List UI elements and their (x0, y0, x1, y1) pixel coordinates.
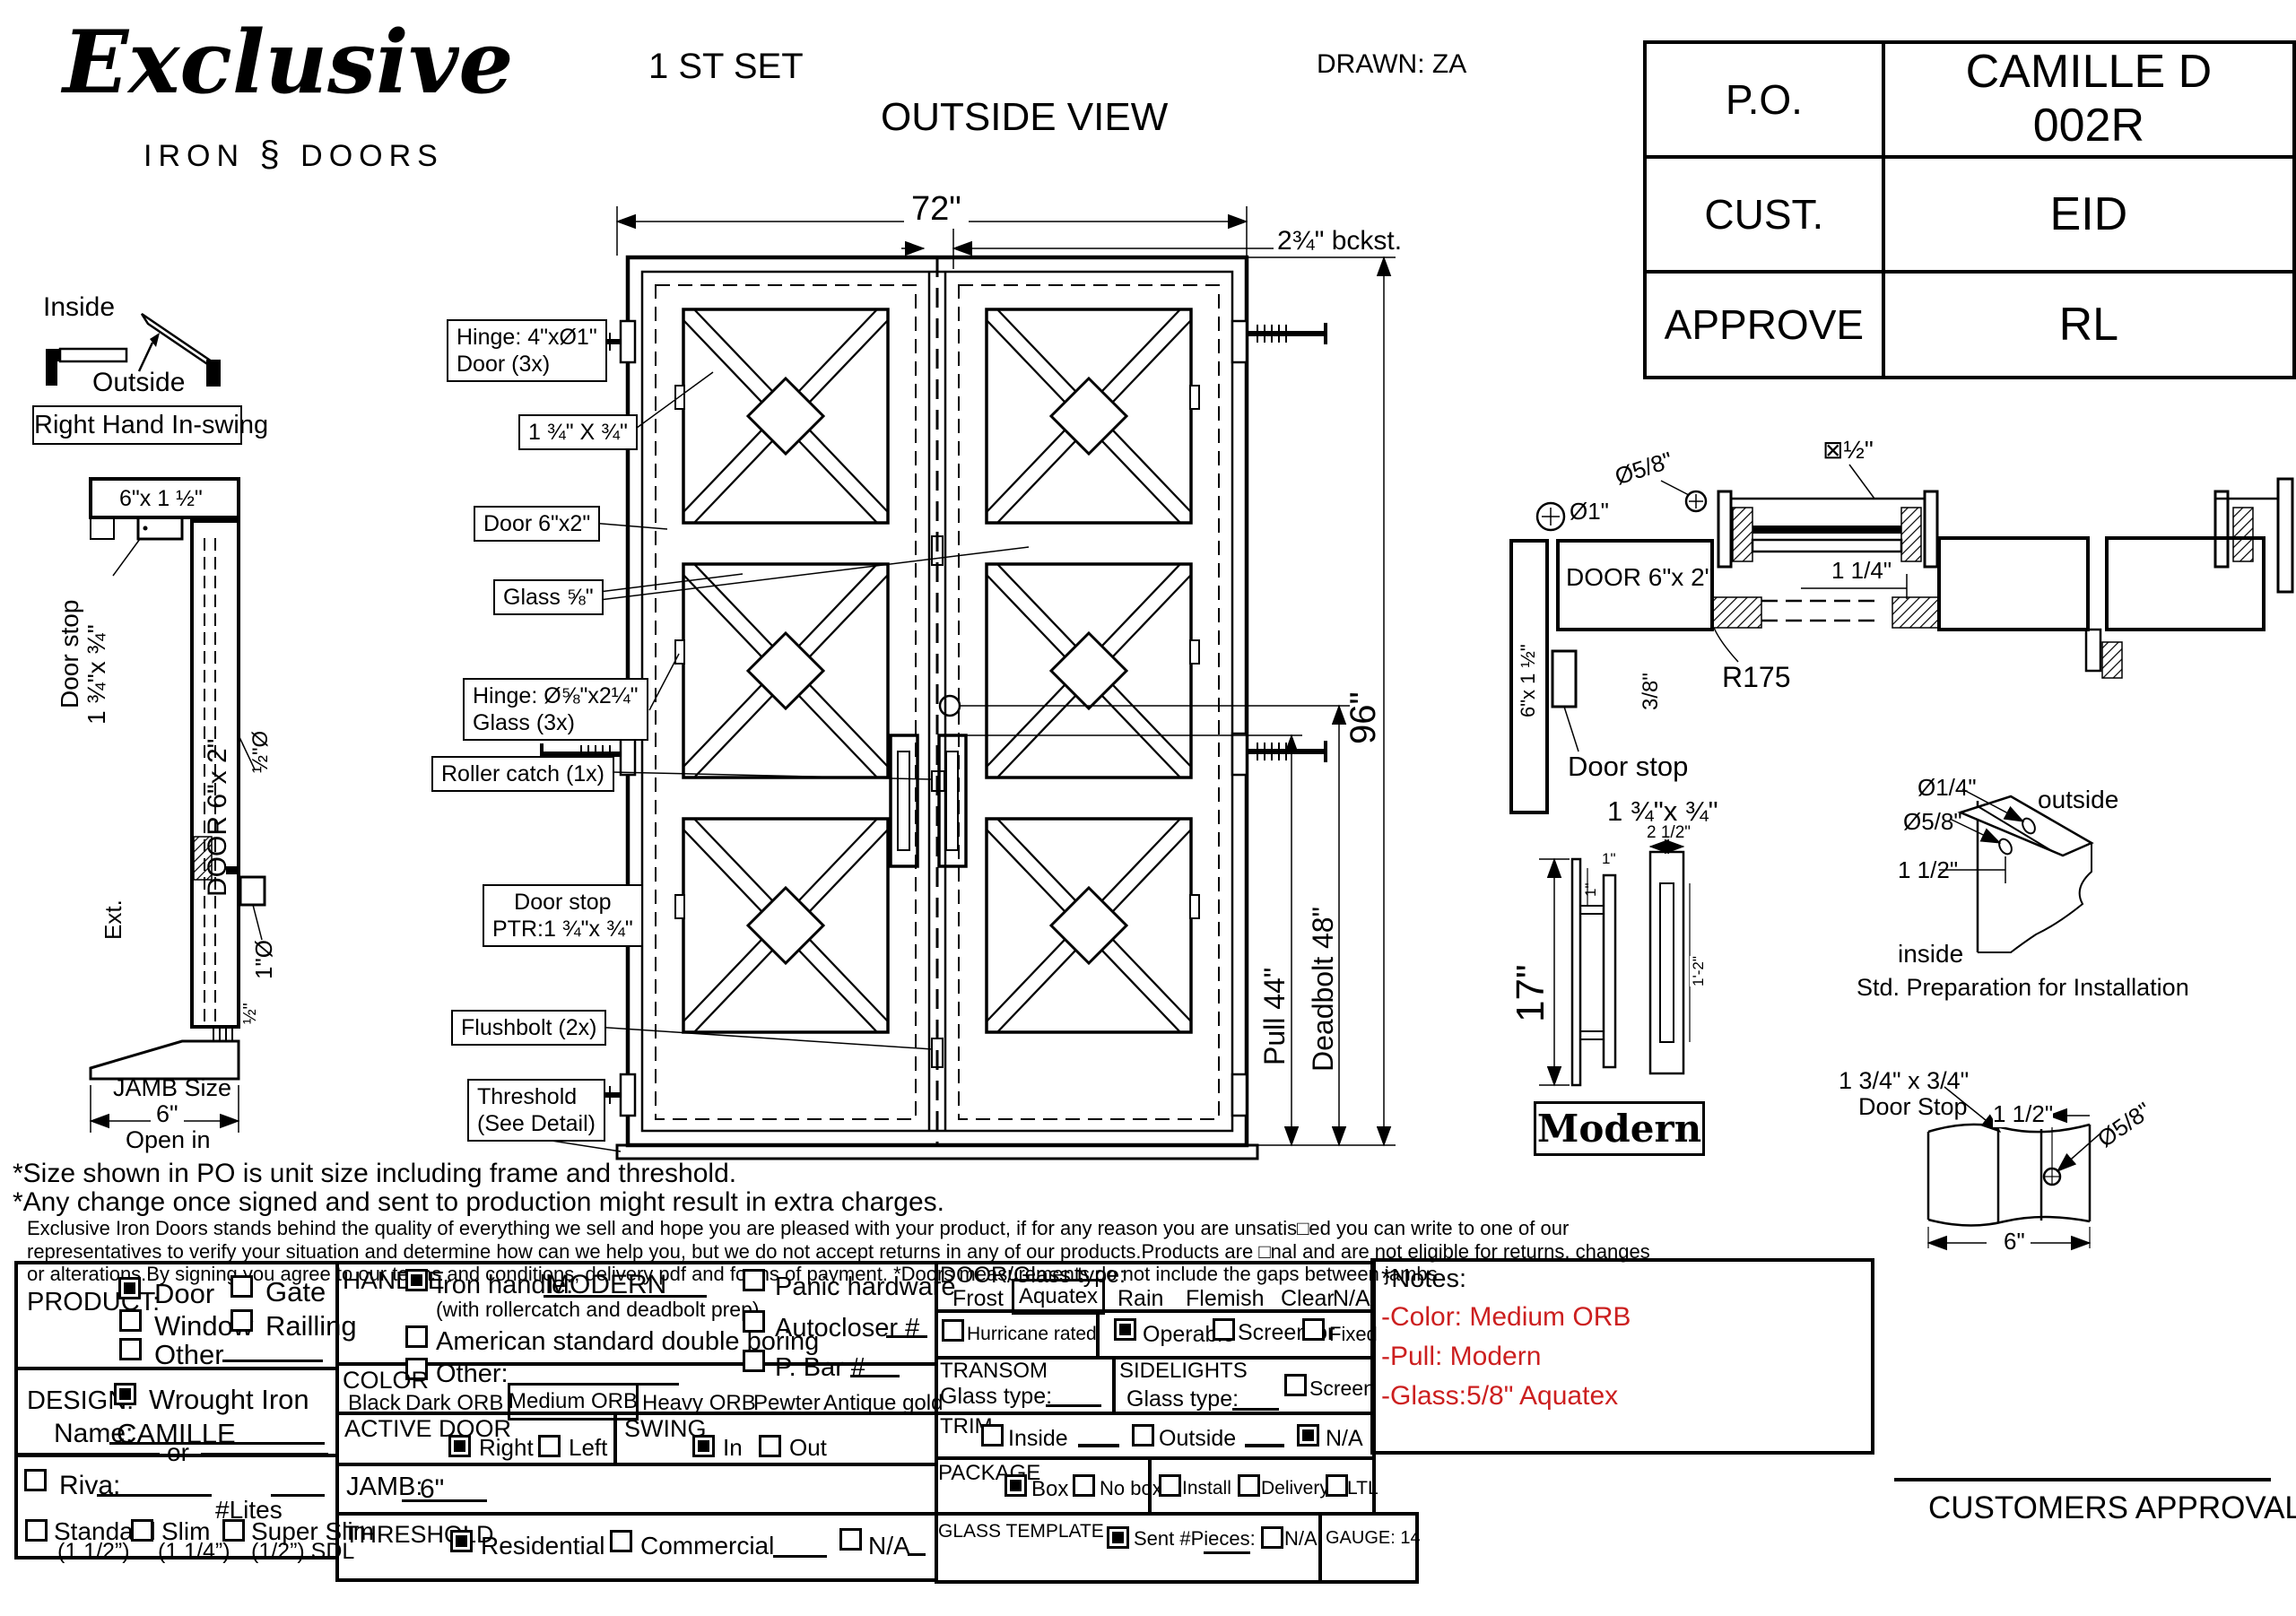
callout-roller: Roller catch (1x) (431, 756, 614, 792)
po-table: P.O. CAMILLE D 002R CUST. EID APPROVE RL (1643, 40, 2296, 379)
head-dim-38: 3/8" (1639, 673, 1664, 710)
color-medium-orb-label: Medium ORB (509, 1389, 638, 1414)
callout-hinge-glass-line2: Glass (3x) (473, 709, 639, 736)
product-railling-checkbox[interactable] (230, 1309, 253, 1332)
logo-doors: DOORS (300, 139, 444, 173)
glass-frost[interactable]: Frost (952, 1286, 1004, 1311)
handle-detail-drawing (1539, 847, 1690, 1085)
glass-na[interactable]: N/A (1333, 1286, 1370, 1311)
handle-one-b: 1" (1602, 850, 1616, 867)
autocloser-checkbox[interactable] (743, 1310, 765, 1333)
note-star2: *Any change once signed and sent to prod… (13, 1187, 944, 1218)
install-inside: inside (1898, 940, 1963, 968)
head-door-label: DOOR 6"x 2" (1566, 563, 1714, 591)
transom-glass-blank[interactable] (1046, 1404, 1101, 1407)
sidelights-screen-checkbox[interactable] (1284, 1374, 1307, 1396)
cust-label: CUST. (1645, 157, 1883, 272)
handle-height-dim: 17" (1509, 964, 1552, 1022)
active-left-label: Left (569, 1435, 607, 1461)
color-label: COLOR (343, 1367, 429, 1394)
callout-door-6x2: Door 6"x2" (474, 506, 600, 542)
cust-value: EID (1883, 157, 2294, 272)
note-star1: *Size shown in PO is unit size including… (13, 1159, 736, 1189)
operable-checkbox[interactable] (1114, 1318, 1136, 1341)
trim-inside-blank[interactable] (1078, 1444, 1119, 1447)
doorstop-name: Door Stop (1858, 1093, 1968, 1120)
color-medium-orb-selected[interactable]: Medium ORB (508, 1383, 639, 1421)
trim-outside-checkbox[interactable] (1132, 1424, 1154, 1447)
product-gate-checkbox[interactable] (230, 1275, 253, 1298)
install-outside: outside (2038, 786, 2118, 813)
callout-flushbolt: Flushbolt (2x) (451, 1010, 606, 1046)
callout-bar-dim: 1 ¾" X ¾" (518, 414, 638, 450)
color-antique-gold[interactable]: Antique gold (823, 1392, 943, 1416)
trim-na-checkbox[interactable] (1297, 1424, 1319, 1447)
package-ltl-label: LTL (1347, 1478, 1378, 1499)
handle-one-a: 1" (1582, 883, 1599, 898)
approve-value: RL (1883, 272, 2294, 378)
po-label: P.O. (1645, 42, 1883, 157)
callout-hinge-door-line1: Hinge: 4"xØ1" (457, 324, 597, 351)
jamb-one-dia: 1"Ø (251, 940, 277, 979)
autocloser-blank[interactable] (886, 1335, 927, 1338)
fixed-checkbox[interactable] (1302, 1318, 1325, 1341)
head-doorstop-label: Door stop (1568, 752, 1688, 783)
head-dim-114: 1 1/4" (1831, 558, 1892, 584)
threshold-residential-label: Residential (481, 1532, 605, 1560)
hurricane-checkbox[interactable] (942, 1319, 964, 1342)
swing-inside-label: Inside (43, 292, 115, 323)
transom-label: TRANSOM (940, 1360, 1048, 1384)
glass-rain[interactable]: Rain (1118, 1286, 1163, 1311)
swing-in-checkbox[interactable] (692, 1435, 715, 1457)
active-left-checkbox[interactable] (538, 1435, 561, 1457)
swing-type-label: Right Hand In-swing (32, 405, 242, 445)
head-dia-one: Ø1" (1570, 499, 1609, 525)
trim-outside-blank[interactable] (1245, 1444, 1284, 1447)
pbar-checkbox[interactable] (743, 1350, 765, 1372)
screen-checkbox[interactable] (1213, 1318, 1235, 1341)
handle-top-width: 2 1/2" (1647, 823, 1691, 842)
jamb-size-label: JAMB Size (113, 1074, 231, 1101)
callout-threshold: Threshold (See Detail) (467, 1079, 605, 1142)
glass-aquatex-label: Aquatex (1019, 1284, 1098, 1309)
approval-signature-line[interactable] (1894, 1478, 2271, 1481)
callout-glass: Glass ⅝" (493, 579, 604, 615)
standard-sub: (1 1/2”) (57, 1539, 130, 1564)
install-caption: Std. Preparation for Installation (1857, 974, 2189, 1001)
trim-outside-label: Outside (1159, 1426, 1236, 1451)
doorstop-dim112: 1 1/2" (1993, 1101, 2053, 1127)
package-nobox-checkbox[interactable] (1073, 1474, 1095, 1497)
doorstop-dim6: 6" (1998, 1229, 2031, 1255)
transom-glass-label: Glass type: (940, 1384, 1052, 1409)
template-sent-label: Sent #Pieces: (1134, 1528, 1256, 1551)
threshold-commercial-blank[interactable] (773, 1555, 827, 1558)
threshold-na-blank[interactable] (908, 1553, 926, 1556)
callout-door-stop-line1: Door stop (492, 889, 633, 916)
super-slim-checkbox[interactable] (222, 1519, 245, 1542)
template-sent-checkbox[interactable] (1107, 1526, 1129, 1549)
slim-sub: (1 1/4”) (158, 1539, 230, 1564)
color-black[interactable]: Black (348, 1392, 401, 1416)
design-name-blank[interactable] (109, 1442, 325, 1445)
approval-label: CUSTOMERS APPROVAL (1928, 1490, 2296, 1525)
callout-door-stop: Door stop PTR:1 ¾"x ¾" (483, 884, 643, 947)
callout-threshold-line2: (See Detail) (477, 1110, 596, 1137)
slim-checkbox[interactable] (131, 1519, 153, 1542)
install-dia58: Ø5/8" (1903, 809, 1962, 835)
dim-backset: 2¾" bckst. (1277, 226, 1402, 256)
jamb-doorstop-label: Door stop (56, 600, 83, 708)
dim-height: 96" (1344, 691, 1384, 744)
trim-inside-label: Inside (1008, 1426, 1068, 1451)
trim-na-label: N/A (1326, 1426, 1363, 1451)
swing-outside-label: Outside (92, 368, 185, 398)
pbar-blank[interactable] (850, 1375, 900, 1377)
color-dark-orb[interactable]: Dark ORB (405, 1392, 503, 1416)
design-wrought-checkbox[interactable] (114, 1383, 136, 1405)
or-label: or (167, 1438, 189, 1466)
install-dia14: Ø1/4" (1918, 775, 1977, 801)
color-pewter[interactable]: Pewter (753, 1392, 821, 1416)
sidelights-glass-label: Glass type: (1126, 1386, 1239, 1412)
head-jamb-dim: 6"x 1 ½" (1518, 644, 1540, 717)
glass-template-label: GLASS TEMPLATE (938, 1521, 1104, 1542)
autocloser-label: Autocloser # (775, 1314, 919, 1342)
swing-out-label: Out (789, 1435, 827, 1461)
active-right-label: Right (479, 1435, 534, 1461)
sidelights-label: SIDELIGHTS (1119, 1360, 1248, 1384)
order-notes-color: -Color: Medium ORB (1381, 1302, 1631, 1333)
set-label: 1 ST SET (648, 47, 804, 87)
package-install-label: Install (1182, 1478, 1231, 1499)
jamb-row-label: JAMB: (346, 1473, 422, 1501)
order-notes-pull: -Pull: Modern (1381, 1342, 1541, 1372)
sidelights-screen-label: Screen (1309, 1377, 1375, 1401)
template-na-checkbox[interactable] (1261, 1526, 1283, 1549)
jamb-ext-label: Ext. (100, 899, 126, 940)
package-delivery-checkbox[interactable] (1238, 1474, 1260, 1497)
threshold-na-label: N/A (868, 1532, 910, 1560)
logo-ornament-icon: § (259, 135, 285, 174)
drawing-sheet: Exclusive IRON § DOORS 1 ST SET OUTSIDE … (0, 0, 2296, 1616)
riva-checkbox[interactable] (24, 1469, 47, 1491)
head-r175: R175 (1722, 662, 1791, 694)
callout-door-stop-line2: PTR:1 ¾"x ¾" (492, 916, 633, 943)
super-slim-sub: (1/2”) SDL (251, 1539, 354, 1564)
approve-label: APPROVE (1645, 272, 1883, 378)
hurricane-label: Hurricane rated (967, 1324, 1097, 1345)
logo-script: Exclusive (63, 14, 514, 111)
panic-checkbox[interactable] (743, 1269, 765, 1291)
order-notes-glass: -Glass:5/8" Aquatex (1381, 1381, 1618, 1412)
callout-hinge-door: Hinge: 4"xØ1" Door (3x) (447, 319, 607, 382)
jamb-half-dim: ½" (240, 1003, 260, 1024)
pbar-label: P. Bar # (775, 1353, 865, 1382)
jamb-open-label: Open in (126, 1126, 211, 1153)
view-title: OUTSIDE VIEW (881, 95, 1168, 139)
package-delivery-label: Delivery (1261, 1478, 1329, 1499)
package-ltl-checkbox[interactable] (1326, 1474, 1348, 1497)
panic-label: Panic hardware (775, 1273, 956, 1301)
product-window-checkbox[interactable] (119, 1309, 142, 1332)
callout-hinge-glass-line1: Hinge: Ø⅝"x2¼" (473, 682, 639, 709)
doorstop-size: 1 3/4" x 3/4" (1839, 1067, 1969, 1094)
swing-in-label: In (723, 1435, 743, 1461)
jamb-half-dia: ½"Ø (249, 731, 274, 773)
iron-handle-sub: (with rollercatch and deadbolt prep) (436, 1299, 760, 1322)
jamb-size-value: 6" (151, 1100, 184, 1127)
trim-inside-checkbox[interactable] (981, 1424, 1004, 1447)
iron-handle-checkbox[interactable] (405, 1269, 428, 1291)
dim-width: 72" (904, 190, 969, 229)
handle-other-label: Other: (436, 1360, 509, 1388)
or-line-right (201, 1453, 328, 1455)
drawn-label: DRAWN: ZA (1317, 49, 1466, 80)
swing-out-checkbox[interactable] (759, 1435, 781, 1457)
product-door-checkbox[interactable] (118, 1277, 141, 1299)
active-right-checkbox[interactable] (448, 1435, 471, 1457)
package-box-label: Box (1031, 1478, 1068, 1502)
glass-aquatex-selected[interactable]: Aquatex (1012, 1279, 1105, 1315)
riva-blank[interactable] (97, 1494, 212, 1497)
template-na-label: N/A (1284, 1528, 1318, 1551)
color-heavy-orb[interactable]: Heavy ORB (642, 1392, 756, 1416)
logo-iron: IRON (143, 139, 245, 173)
package-box-checkbox[interactable] (1004, 1474, 1027, 1497)
standard-checkbox[interactable] (25, 1519, 48, 1542)
template-sent-blank[interactable] (1204, 1551, 1250, 1554)
dim-deadbolt: Deadbolt 48" (1308, 907, 1340, 1072)
product-other-label: Other (154, 1340, 224, 1371)
sidelights-glass-blank[interactable] (1232, 1408, 1279, 1411)
glass-clear[interactable]: Clear (1281, 1286, 1335, 1311)
fixed-label: Fixed (1329, 1324, 1378, 1346)
jamb-section-drawing (91, 479, 265, 1133)
handle-label: HANDLE (343, 1266, 445, 1294)
glass-flemish[interactable]: Flemish (1186, 1286, 1265, 1311)
product-other-checkbox[interactable] (119, 1338, 142, 1360)
callout-threshold-line1: Threshold (477, 1083, 596, 1110)
product-gate-label: Gate (265, 1277, 326, 1308)
jamb-header-dim: 6"x 1 ½" (119, 486, 203, 511)
product-door-label: Door (154, 1279, 214, 1310)
product-railling-label: Railling (265, 1311, 357, 1342)
gauge-label: GAUGE: 14 (1326, 1528, 1421, 1548)
po-value: CAMILLE D 002R (1883, 42, 2294, 157)
jamb-row-blank[interactable] (402, 1499, 487, 1502)
product-other-blank[interactable] (222, 1360, 323, 1362)
note-para1: Exclusive Iron Doors stands behind the q… (27, 1218, 1569, 1240)
head-sq-half: ⊠½" (1822, 436, 1874, 464)
threshold-commercial-checkbox[interactable] (610, 1530, 632, 1552)
american-boring-checkbox[interactable] (405, 1325, 428, 1348)
handle-style-label: Modern (1534, 1101, 1705, 1156)
jamb-doorstop-dim: 1 ¾"x ¾" (83, 624, 110, 725)
threshold-commercial-label: Commercial (640, 1532, 774, 1560)
callout-hinge-door-line2: Door (3x) (457, 351, 597, 378)
package-install-checkbox[interactable] (1159, 1474, 1181, 1497)
threshold-na-checkbox[interactable] (839, 1528, 862, 1551)
handle-inner-dim: 1'-2" (1690, 956, 1707, 986)
design-wrought-label: Wrought Iron (149, 1385, 309, 1416)
package-nobox-label: No box (1100, 1478, 1162, 1500)
threshold-residential-checkbox[interactable] (450, 1530, 473, 1552)
install-dim112: 1 1/2" (1898, 857, 1958, 883)
callout-hinge-glass: Hinge: Ø⅝"x2¼" Glass (3x) (463, 678, 648, 741)
order-notes-title: *Notes: (1381, 1264, 1466, 1293)
or-line-left (18, 1453, 160, 1455)
dim-pull: Pull 44" (1259, 968, 1291, 1065)
jamb-door-label: DOOR 6"x 2" (203, 739, 233, 897)
